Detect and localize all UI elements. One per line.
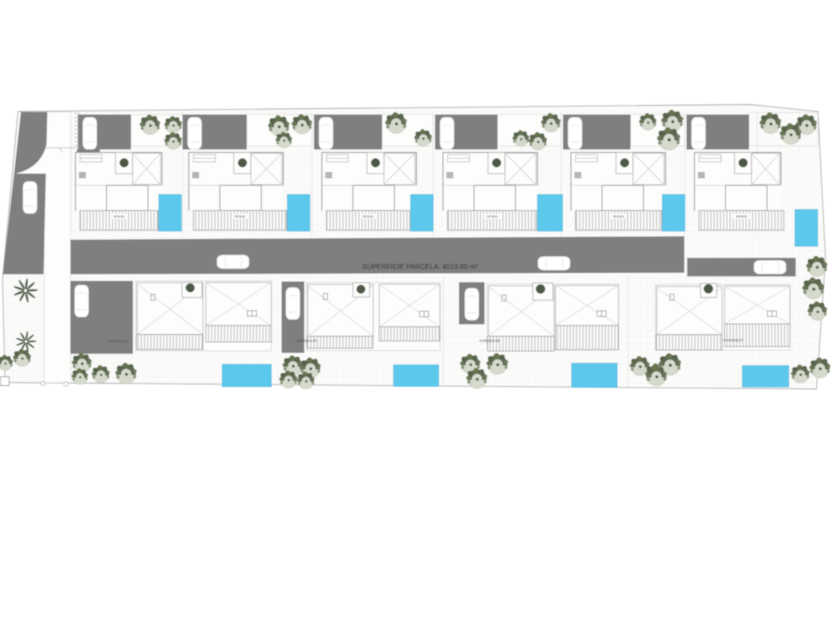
svg-text:terraza: terraza <box>736 215 747 219</box>
svg-text:VIVIENDA 10: VIVIENDA 10 <box>108 340 128 344</box>
svg-text:terraza: terraza <box>613 215 624 219</box>
svg-text:terraza: terraza <box>114 215 125 219</box>
svg-text:VIVIENDA 09: VIVIENDA 09 <box>296 339 316 343</box>
svg-text:VIVIENDA 07: VIVIENDA 07 <box>723 339 743 343</box>
svg-text:terraza: terraza <box>363 215 374 219</box>
svg-text:VIVIENDA 08: VIVIENDA 08 <box>479 339 499 343</box>
svg-text:terraza: terraza <box>487 215 498 219</box>
svg-text:terraza: terraza <box>235 215 246 219</box>
svg-text:SUPERFICIE PARCELA: 4019.00 m²: SUPERFICIE PARCELA: 4019.00 m² <box>362 264 478 271</box>
